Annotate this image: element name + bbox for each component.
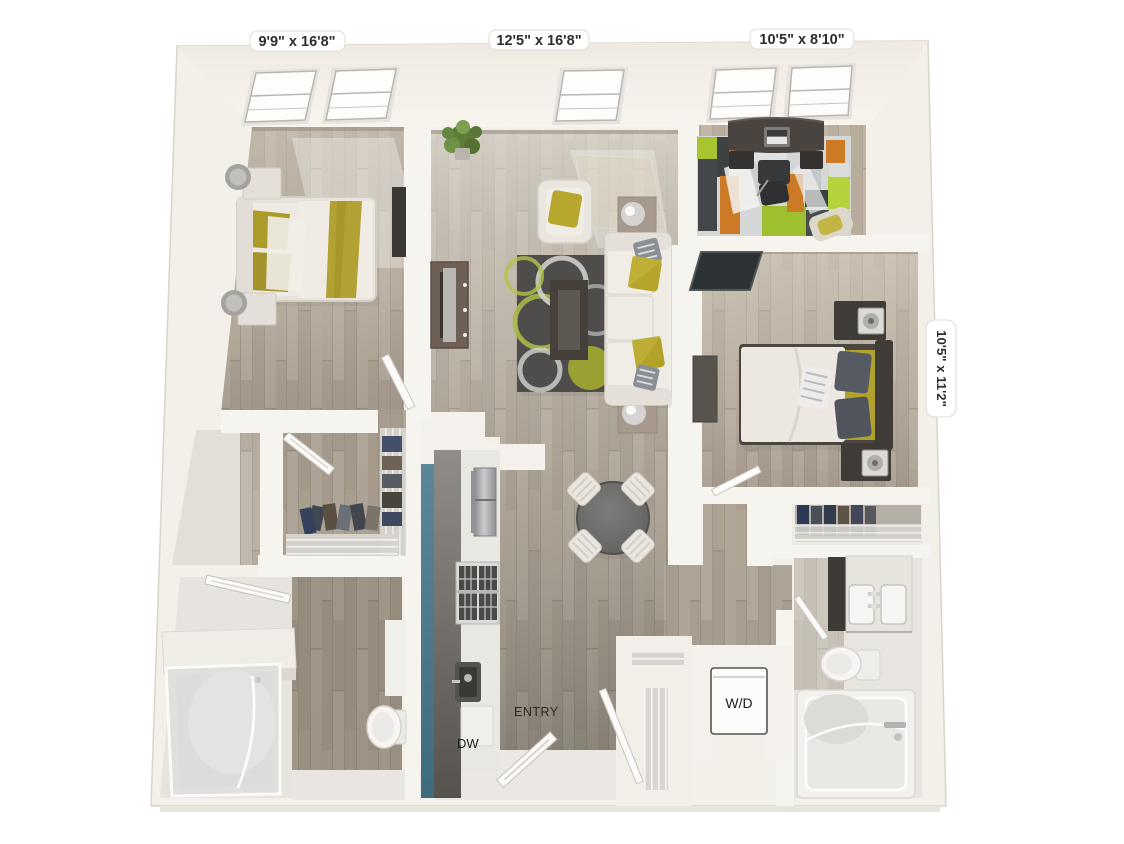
svg-text:12'5" x 16'8": 12'5" x 16'8"	[496, 33, 581, 49]
svg-text:10'5" x 11'2": 10'5" x 11'2"	[934, 330, 949, 407]
svg-text:9'9" x 16'8": 9'9" x 16'8"	[258, 34, 335, 50]
svg-text:W/D: W/D	[725, 695, 752, 711]
svg-text:DW: DW	[457, 736, 479, 751]
svg-text:ENTRY: ENTRY	[514, 705, 559, 719]
svg-text:10'5" x 8'10": 10'5" x 8'10"	[759, 32, 844, 48]
